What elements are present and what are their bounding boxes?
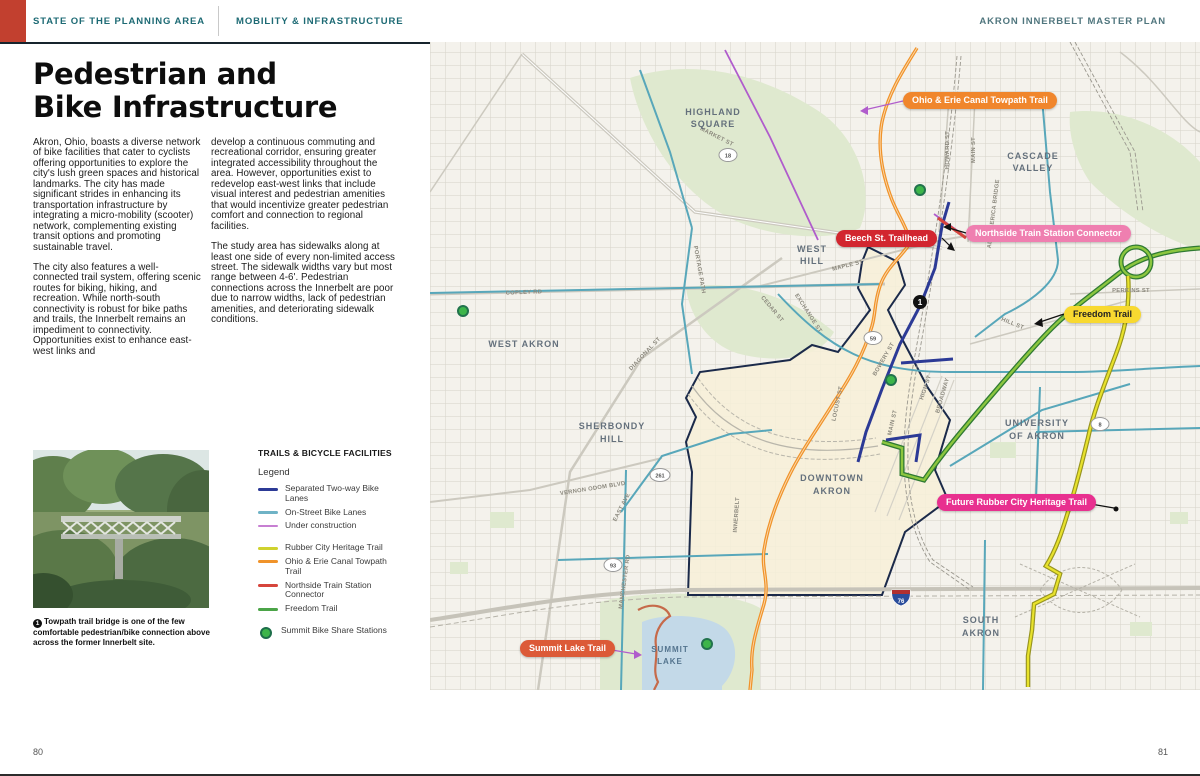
- svg-text:EAST AVE: EAST AVE: [612, 492, 631, 522]
- page-title-line1: Pedestrian and: [33, 58, 399, 91]
- legend-item: Northside Train Station Connector: [258, 581, 398, 601]
- svg-text:LAKE: LAKE: [657, 657, 683, 666]
- callout-ohio-erie-towpath-trail: Ohio & Erie Canal Towpath Trail: [903, 92, 1057, 109]
- legend-item-label: On-Street Bike Lanes: [285, 508, 366, 518]
- svg-text:MAIN ST: MAIN ST: [971, 137, 977, 163]
- rubber-city-trail-swatch: [258, 547, 278, 550]
- svg-text:UNIVERSITY: UNIVERSITY: [1005, 418, 1069, 428]
- article: Pedestrian and Bike Infrastructure Akron…: [33, 58, 399, 367]
- callout-beech-st-trailhead: Beech St. Trailhead: [836, 230, 937, 247]
- legend-item-label: Freedom Trail: [285, 604, 337, 614]
- header-divider: [218, 6, 219, 36]
- towpath-trail-swatch: [258, 560, 278, 563]
- callout-northside-train-station-connector: Northside Train Station Connector: [966, 225, 1131, 242]
- trails-bicycle-facilities-map: 18 59 8 261 93 76 MARKET ST HOWARD ST MA…: [430, 42, 1200, 690]
- route-shield-93: 93: [610, 564, 616, 570]
- legend-item-label: Separated Two-way Bike Lanes: [285, 484, 398, 504]
- map-marker-1: 1: [913, 295, 927, 309]
- legend-item: Under construction: [258, 521, 398, 531]
- page-number-right: 81: [1158, 747, 1168, 757]
- legend-item: Summit Bike Share Stations: [258, 626, 398, 639]
- paragraph: develop a continuous commuting and recre…: [211, 138, 399, 232]
- legend-item: Rubber City Heritage Trail: [258, 543, 398, 553]
- legend-item-label: Rubber City Heritage Trail: [285, 543, 383, 553]
- route-shield-18: 18: [725, 154, 731, 160]
- body-column-2: develop a continuous commuting and recre…: [211, 138, 399, 367]
- legend-item: Separated Two-way Bike Lanes: [258, 484, 398, 504]
- under-construction-swatch: [258, 525, 278, 527]
- legend-item-label: Northside Train Station Connector: [285, 581, 398, 601]
- svg-text:SOUTH: SOUTH: [963, 615, 1000, 625]
- caption-text: Towpath trail bridge is one of the few c…: [33, 617, 210, 647]
- svg-text:MAPLE ST: MAPLE ST: [832, 259, 864, 273]
- svg-text:HILL: HILL: [600, 434, 624, 444]
- svg-text:VERNON ODOM BLVD: VERNON ODOM BLVD: [560, 481, 626, 497]
- on-street-bike-lane-swatch: [258, 511, 278, 514]
- legend-title: TRAILS & BICYCLE FACILITIES: [258, 448, 398, 458]
- svg-text:OF AKRON: OF AKRON: [1009, 431, 1065, 441]
- callout-future-rubber-city-heritage-trail: Future Rubber City Heritage Trail: [937, 494, 1096, 511]
- page-title-line2: Bike Infrastructure: [33, 91, 399, 124]
- svg-text:DOWNTOWN: DOWNTOWN: [800, 473, 864, 483]
- callout-freedom-trail: Freedom Trail: [1064, 306, 1141, 323]
- svg-text:1: 1: [918, 297, 923, 307]
- separated-bike-lane-swatch: [258, 488, 278, 491]
- accent-square: [0, 0, 26, 42]
- svg-text:SUMMIT: SUMMIT: [651, 645, 689, 654]
- route-shield-8: 8: [1098, 423, 1101, 429]
- svg-text:COPLEY RD: COPLEY RD: [506, 289, 543, 296]
- svg-text:HOWARD ST: HOWARD ST: [945, 131, 951, 169]
- svg-text:AKRON: AKRON: [813, 486, 851, 496]
- legend-item: Ohio & Erie Canal Towpath Trail: [258, 557, 398, 577]
- header-section: STATE OF THE PLANNING AREA: [33, 16, 205, 27]
- callout-summit-lake-trail: Summit Lake Trail: [520, 640, 615, 657]
- page-number-left: 80: [33, 747, 43, 757]
- page-title: Pedestrian and Bike Infrastructure: [33, 58, 399, 124]
- photo-caption: 1Towpath trail bridge is one of the few …: [33, 617, 223, 648]
- paragraph: Akron, Ohio, boasts a diverse network of…: [33, 138, 201, 253]
- svg-text:SQUARE: SQUARE: [691, 119, 736, 129]
- svg-text:VALLEY: VALLEY: [1013, 163, 1054, 173]
- photo-towpath-bridge: [33, 450, 209, 608]
- interstate-76-label: 76: [898, 599, 905, 605]
- svg-text:HIGHLAND: HIGHLAND: [685, 107, 741, 117]
- photo-illustration: [33, 450, 209, 608]
- svg-text:HILL: HILL: [800, 256, 824, 266]
- legend-item-label: Under construction: [285, 521, 356, 531]
- northside-connector-swatch: [258, 584, 278, 587]
- svg-text:AKRON: AKRON: [962, 628, 1000, 638]
- bike-share-station-swatch: [260, 627, 272, 639]
- legend-item-label: Summit Bike Share Stations: [281, 626, 387, 639]
- body-columns: Akron, Ohio, boasts a diverse network of…: [33, 138, 399, 367]
- route-shield-261: 261: [655, 474, 664, 480]
- header-document-title: AKRON INNERBELT MASTER PLAN: [979, 16, 1166, 27]
- header-chapter: MOBILITY & INFRASTRUCTURE: [236, 16, 403, 27]
- document-page: STATE OF THE PLANNING AREA MOBILITY & IN…: [0, 0, 1200, 776]
- freedom-trail-swatch: [258, 608, 278, 611]
- paragraph: The study area has sidewalks along at le…: [211, 242, 399, 326]
- route-shield-59: 59: [870, 337, 876, 343]
- page-header: STATE OF THE PLANNING AREA MOBILITY & IN…: [0, 0, 1200, 44]
- body-column-1: Akron, Ohio, boasts a diverse network of…: [33, 138, 201, 367]
- svg-text:WEST: WEST: [797, 244, 827, 254]
- caption-number-marker: 1: [33, 619, 42, 628]
- svg-text:PERKINS ST: PERKINS ST: [1112, 288, 1150, 294]
- svg-text:DIAGONAL ST: DIAGONAL ST: [628, 336, 662, 372]
- svg-text:WEST AKRON: WEST AKRON: [488, 339, 559, 349]
- legend-subtitle: Legend: [258, 467, 398, 478]
- svg-text:HILL ST: HILL ST: [1000, 317, 1025, 332]
- svg-text:SHERBONDY: SHERBONDY: [579, 421, 646, 431]
- legend-item: Freedom Trail: [258, 604, 398, 614]
- map-legend: TRAILS & BICYCLE FACILITIES Legend Separ…: [258, 448, 398, 643]
- svg-text:CASCADE: CASCADE: [1007, 151, 1059, 161]
- paragraph: The city also features a well-connected …: [33, 263, 201, 357]
- legend-item: On-Street Bike Lanes: [258, 508, 398, 518]
- legend-item-label: Ohio & Erie Canal Towpath Trail: [285, 557, 398, 577]
